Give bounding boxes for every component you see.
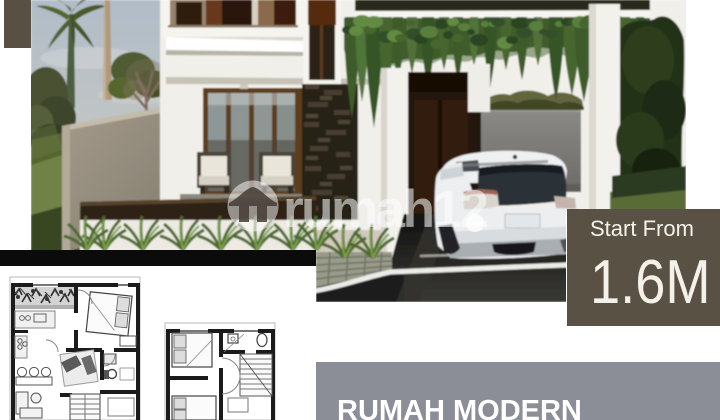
svg-text:Start From: Start From — [590, 216, 694, 241]
svg-text:rumah12: rumah12 — [283, 180, 487, 239]
svg-text:1.6M: 1.6M — [590, 248, 711, 317]
svg-text:RUMAH MODERN: RUMAH MODERN — [337, 395, 582, 420]
